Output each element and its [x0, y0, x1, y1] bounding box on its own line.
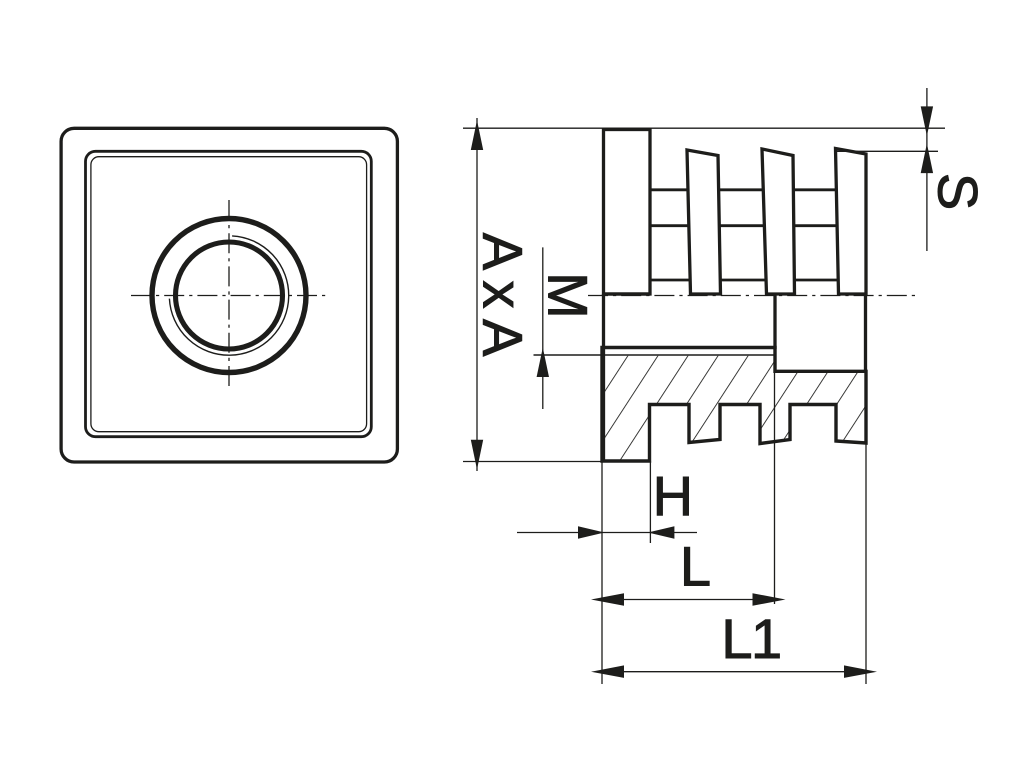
svg-text:L: L: [680, 535, 711, 598]
svg-text:M: M: [537, 272, 600, 319]
svg-text:A x A: A x A: [472, 233, 535, 357]
svg-text:S: S: [927, 173, 990, 210]
svg-text:H: H: [653, 465, 693, 528]
svg-text:L1: L1: [721, 607, 780, 670]
